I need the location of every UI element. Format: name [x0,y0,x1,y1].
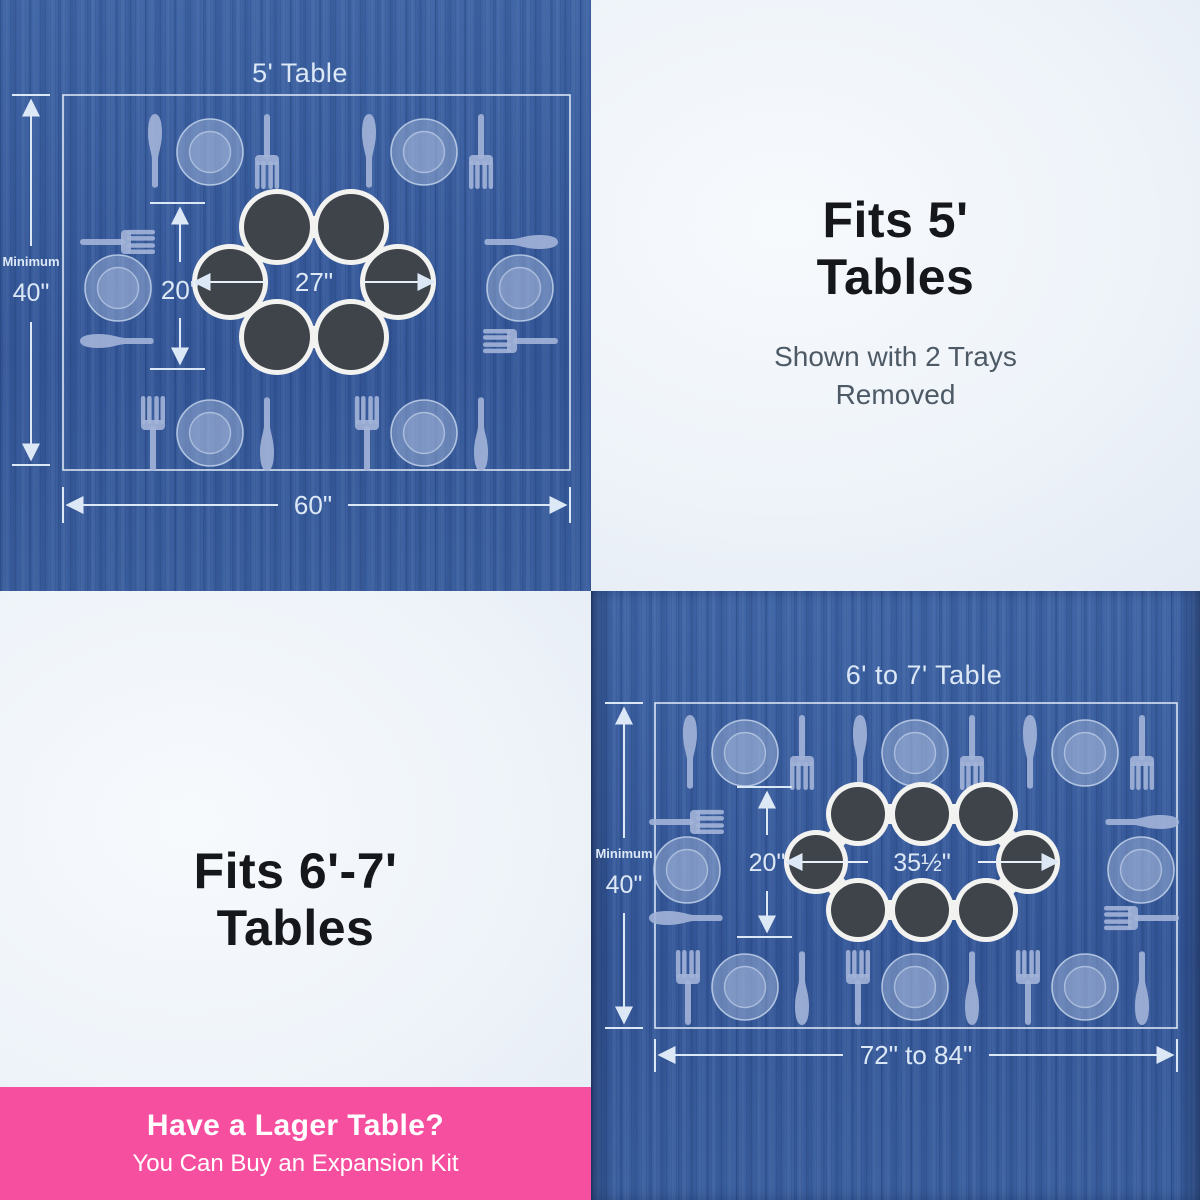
dimension-min-depth-67ft [605,703,643,1028]
knife-icon [795,951,809,1025]
plate-icon [882,954,948,1020]
knife-icon [474,397,488,471]
plate-icon [712,720,778,786]
fork-icon [255,114,279,189]
panel-5ft-diagram: 5' Table Minimum 40" 60" [0,0,591,591]
panel-fits-5ft: Fits 5' Tables Shown with 2 Trays Remove… [591,0,1200,591]
knife-icon [853,715,867,789]
min-depth-label-5ft: Minimum [2,254,59,269]
plate-icon [1052,720,1118,786]
fits-5ft-heading-line2: Tables [591,249,1200,306]
fits-5ft-heading-line1: Fits 5' [591,192,1200,249]
fork-icon [676,950,700,1025]
ring-width-value-5ft: 27" [295,267,333,297]
plate-icon [487,255,553,321]
fork-icon [960,715,984,790]
plate-icon [654,837,720,903]
expansion-kit-banner: Have a Lager Table? You Can Buy an Expan… [0,1087,591,1200]
fits-5ft-note-line2: Removed [591,376,1200,414]
width-value-67ft: 72" to 84" [860,1040,972,1070]
knife-icon [1023,715,1037,789]
knife-icon [965,951,979,1025]
plate-icon [177,119,243,185]
plate-icon [85,255,151,321]
plate-icon [882,720,948,786]
fits-5ft-note: Shown with 2 Trays Removed [591,338,1200,414]
plate-icon [1108,837,1174,903]
knife-icon [260,397,274,471]
fork-icon [1104,906,1179,930]
min-depth-value-67ft: 40" [606,871,643,899]
ring-height-value-67ft: 20" [749,849,786,877]
plate-icon [177,400,243,466]
width-value-5ft: 60" [294,490,332,520]
fork-icon [355,396,379,471]
fork-icon [790,715,814,790]
fits-5ft-note-line1: Shown with 2 Trays [591,338,1200,376]
min-depth-value-5ft: 40" [13,279,50,307]
knife-icon [683,715,697,789]
knife-icon [362,114,376,188]
fork-icon [1130,715,1154,790]
knife-icon [1135,951,1149,1025]
fork-icon [80,230,155,254]
fits-5ft-heading: Fits 5' Tables [591,192,1200,306]
knife-icon [484,235,558,249]
panel-fits-67ft: Fits 6'-7' Tables Have a Lager Table? Yo… [0,591,591,1200]
ring-width-value-67ft: 35½" [893,849,951,877]
infographic-grid: 5' Table Minimum 40" 60" [0,0,1200,1200]
plate-icon [391,119,457,185]
plate-icon [712,954,778,1020]
knife-icon [80,334,154,348]
panel-67ft-diagram: 6' to 7' Table Minimum 40" 72" to 84" [591,591,1200,1200]
fits-67ft-heading-line2: Tables [0,900,591,957]
plate-icon [391,400,457,466]
knife-icon [1105,815,1179,829]
fork-icon [846,950,870,1025]
fork-icon [469,114,493,189]
fork-icon [141,396,165,471]
banner-subtitle: You Can Buy an Expansion Kit [132,1150,458,1178]
knife-icon [148,114,162,188]
ring-height-value-5ft: 20" [161,275,199,305]
fork-icon [1016,950,1040,1025]
fits-67ft-heading-line1: Fits 6'-7' [0,843,591,900]
banner-title: Have a Lager Table? [147,1109,444,1143]
fits-67ft-heading: Fits 6'-7' Tables [0,843,591,957]
knife-icon [649,911,723,925]
fork-icon [649,810,724,834]
plate-icon [1052,954,1118,1020]
fork-icon [483,329,558,353]
min-depth-label-67ft: Minimum [595,846,652,861]
diagram-title-5ft: 5' Table [252,58,348,88]
diagram-title-67ft: 6' to 7' Table [846,660,1002,690]
